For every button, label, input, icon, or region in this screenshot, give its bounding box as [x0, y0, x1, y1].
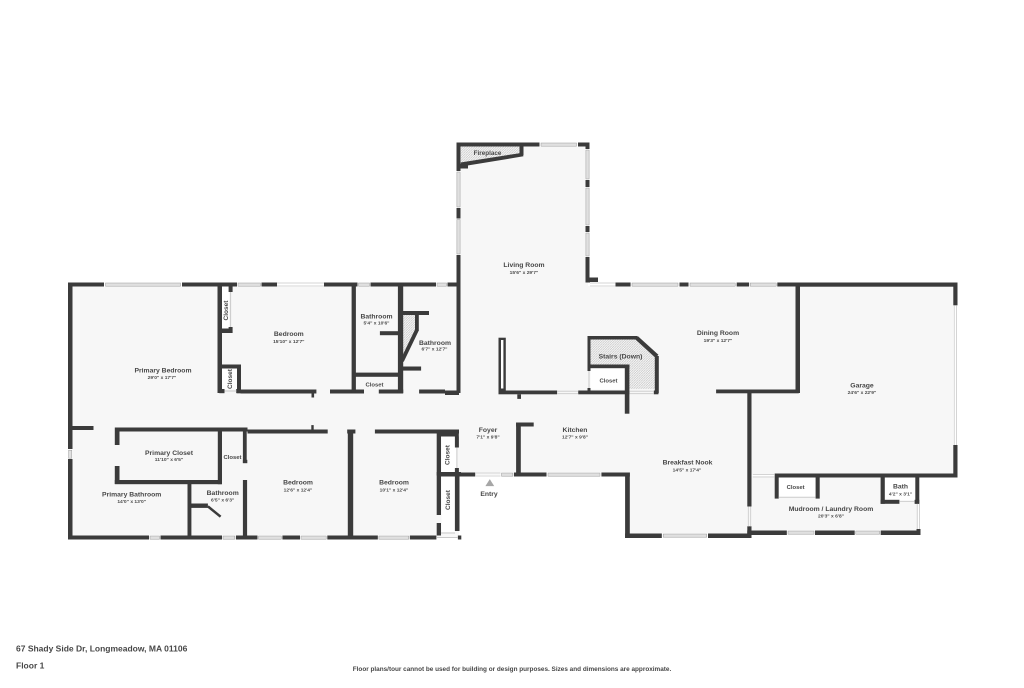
svg-text:Closet: Closet [445, 489, 452, 510]
svg-text:Primary Bedroom: Primary Bedroom [134, 368, 191, 375]
svg-text:Closet: Closet [787, 485, 805, 491]
svg-text:7'1" x 9'8": 7'1" x 9'8" [476, 435, 499, 441]
svg-text:Primary Closet: Primary Closet [145, 450, 194, 457]
svg-text:Bathroom: Bathroom [360, 313, 392, 320]
svg-text:Dining Room: Dining Room [697, 330, 739, 337]
svg-text:Closet: Closet [227, 368, 234, 389]
svg-text:10'1" x 12'4": 10'1" x 12'4" [380, 488, 409, 494]
svg-text:Bedroom: Bedroom [379, 480, 409, 487]
svg-text:5'4" x 10'6": 5'4" x 10'6" [363, 320, 389, 326]
svg-text:15'6" x 29'7": 15'6" x 29'7" [510, 270, 539, 276]
svg-text:Living Room: Living Room [503, 262, 544, 269]
svg-text:Floor 1: Floor 1 [16, 661, 45, 671]
svg-text:4'2" x 3'1": 4'2" x 3'1" [889, 492, 912, 498]
svg-text:Bathroom: Bathroom [207, 490, 239, 497]
svg-text:24'6" x 22'9": 24'6" x 22'9" [848, 390, 877, 396]
svg-text:6'5" x 6'3": 6'5" x 6'3" [211, 498, 234, 504]
svg-text:Mudroom / Laundry Room: Mudroom / Laundry Room [789, 506, 874, 513]
svg-text:6'7" x 12'7": 6'7" x 12'7" [421, 347, 447, 353]
svg-text:Foyer: Foyer [479, 427, 498, 434]
svg-text:Primary Bathroom: Primary Bathroom [102, 492, 161, 499]
svg-text:Garage: Garage [850, 383, 874, 390]
svg-text:Closet: Closet [599, 379, 617, 385]
svg-text:20'3" x 6'8": 20'3" x 6'8" [818, 513, 844, 519]
svg-text:Breakfast Nook: Breakfast Nook [663, 460, 713, 467]
svg-text:15'10" x 12'7": 15'10" x 12'7" [273, 339, 304, 345]
svg-text:Stairs (Down): Stairs (Down) [599, 354, 643, 361]
svg-text:Bedroom: Bedroom [274, 331, 304, 338]
svg-text:Closet: Closet [223, 455, 241, 461]
svg-text:Closet: Closet [445, 444, 452, 465]
svg-text:Floor plans/tour cannot be use: Floor plans/tour cannot be used for buil… [353, 666, 672, 673]
svg-text:12'6" x 12'4": 12'6" x 12'4" [284, 488, 313, 494]
svg-text:Fireplace: Fireplace [474, 150, 502, 157]
svg-text:Entry: Entry [480, 491, 498, 498]
svg-text:Closet: Closet [365, 383, 383, 389]
svg-text:Bathroom: Bathroom [419, 340, 451, 347]
svg-text:14'0" x 13'0": 14'0" x 13'0" [117, 499, 146, 505]
svg-text:Bedroom: Bedroom [283, 480, 313, 487]
svg-text:12'7" x 9'8": 12'7" x 9'8" [562, 435, 588, 441]
svg-text:Kitchen: Kitchen [563, 427, 588, 434]
svg-text:19'3" x 12'7": 19'3" x 12'7" [704, 338, 733, 344]
svg-text:11'10" x 6'5": 11'10" x 6'5" [155, 457, 183, 463]
svg-text:Closet: Closet [223, 300, 230, 321]
svg-text:14'5" x 17'4": 14'5" x 17'4" [673, 468, 702, 474]
svg-text:29'0" x 17'7": 29'0" x 17'7" [148, 375, 177, 381]
svg-text:Bath: Bath [893, 484, 908, 491]
svg-text:67 Shady Side Dr, Longmeadow,: 67 Shady Side Dr, Longmeadow, MA 01106 [16, 644, 188, 654]
